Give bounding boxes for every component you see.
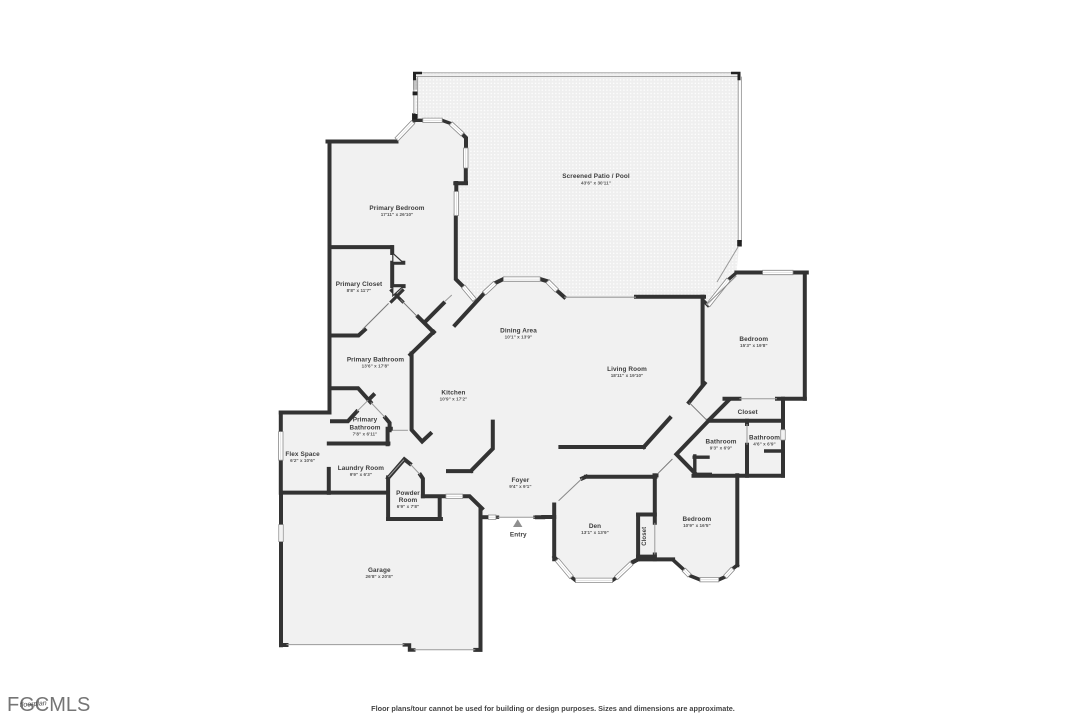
svg-text:Screened Patio / Pool: Screened Patio / Pool [562,173,630,180]
svg-text:9'4" x 9'1": 9'4" x 9'1" [509,484,531,489]
svg-text:Kitchen: Kitchen [441,390,465,397]
svg-text:10'1" x 13'9": 10'1" x 13'9" [505,335,533,340]
svg-text:Laundry Room: Laundry Room [338,465,385,472]
svg-text:Primary: Primary [353,417,378,424]
svg-text:6'2" x 10'6": 6'2" x 10'6" [290,458,315,463]
svg-text:9'3" x 6'9": 9'3" x 6'9" [710,446,732,451]
svg-text:Bedroom: Bedroom [683,516,712,523]
svg-text:Entry: Entry [510,532,527,539]
svg-text:Primary Closet: Primary Closet [336,281,383,288]
svg-text:Room: Room [399,497,418,504]
svg-text:Floor plans/tour cannot be use: Floor plans/tour cannot be used for buil… [371,704,735,713]
svg-text:Primary Bathroom: Primary Bathroom [347,357,405,364]
svg-text:Living Room: Living Room [607,366,647,373]
svg-text:43'6" x 30'11": 43'6" x 30'11" [581,181,611,186]
svg-text:10'9" x 16'5": 10'9" x 16'5" [683,523,711,528]
svg-text:Bathroom: Bathroom [350,425,381,432]
svg-text:6'9" x 7'8": 6'9" x 7'8" [397,504,419,509]
svg-text:Den: Den [589,523,601,530]
svg-text:Dining Area: Dining Area [500,328,537,335]
svg-text:Closet: Closet [642,527,648,546]
svg-text:13'6" x 17'8": 13'6" x 17'8" [362,364,390,369]
svg-text:Flex Space: Flex Space [285,451,320,458]
svg-text:13'1" x 13'9": 13'1" x 13'9" [581,530,609,535]
svg-text:Bathroom: Bathroom [706,439,737,446]
svg-text:9'9" x 6'3": 9'9" x 6'3" [350,472,372,477]
svg-text:Primary Bedroom: Primary Bedroom [369,205,424,212]
svg-text:8'8" x 11'7": 8'8" x 11'7" [347,288,372,293]
svg-text:7'8" x 6'11": 7'8" x 6'11" [353,432,378,437]
svg-text:26'8" x 20'8": 26'8" x 20'8" [365,574,393,579]
svg-text:Garage: Garage [368,567,391,574]
svg-text:4'6" x 6'9": 4'6" x 6'9" [753,441,775,446]
svg-text:17'11" x 26'10": 17'11" x 26'10" [381,212,414,217]
svg-text:Foyer: Foyer [511,477,529,484]
svg-text:Closet: Closet [738,409,759,416]
svg-text:10'9" x 17'2": 10'9" x 17'2" [440,397,468,402]
svg-text:18'11" x 19'10": 18'11" x 19'10" [611,373,644,378]
svg-text:Powder: Powder [396,490,420,497]
svg-text:15'3" x 19'8": 15'3" x 19'8" [740,343,768,348]
svg-text:Bedroom: Bedroom [739,336,768,343]
